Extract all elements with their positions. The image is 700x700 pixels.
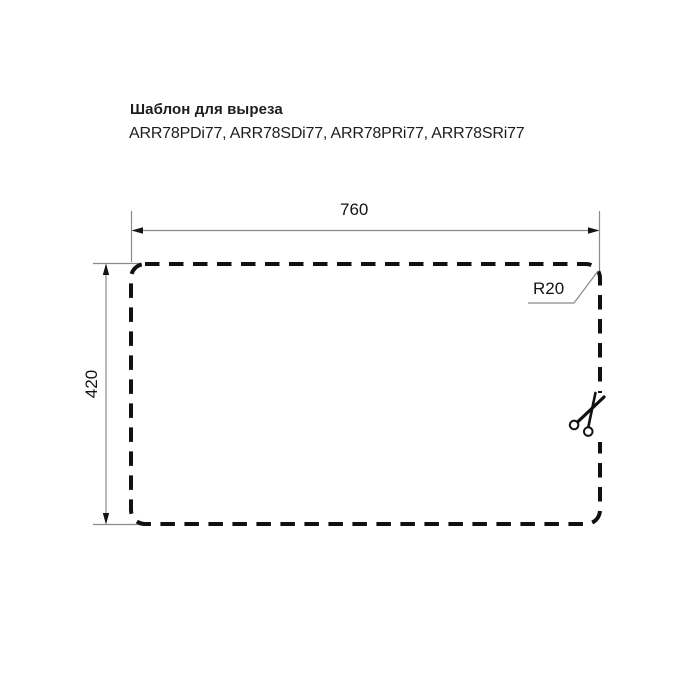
scissors-handle [583, 426, 594, 437]
cutout-drawing [0, 0, 700, 700]
cutout-template-page: Шаблон для выреза ARR78PDi77, ARR78SDi77… [0, 0, 700, 700]
height-arrow-bottom-icon [103, 513, 109, 525]
width-arrow-left-icon [132, 227, 144, 233]
height-dimension-label: 420 [82, 366, 102, 402]
width-dimension-label: 760 [340, 200, 368, 220]
width-arrow-right-icon [588, 227, 600, 233]
corner-radius-label: R20 [533, 279, 564, 299]
height-arrow-top-icon [103, 264, 109, 276]
